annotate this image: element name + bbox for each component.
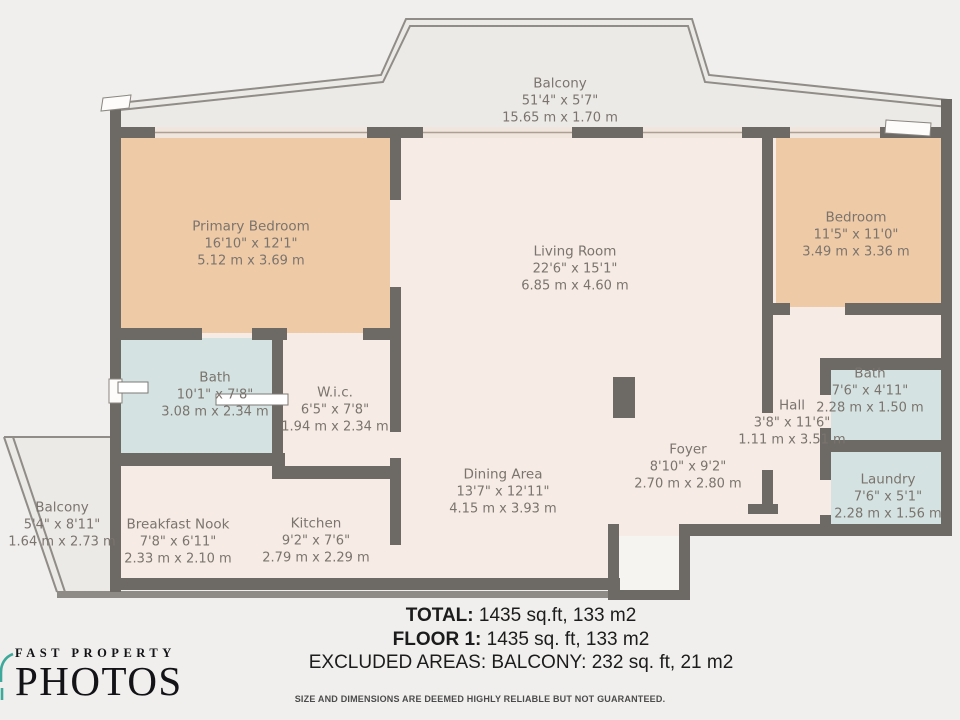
fast-property-photos-logo: FAST PROPERTY PHOTOS [0, 642, 183, 704]
room-dim-metric: 2.79 m x 2.29 m [262, 550, 369, 567]
room-dim-metric: 15.65 m x 1.70 m [502, 110, 618, 127]
room-dim-imperial: 9'2" x 7'6" [262, 533, 369, 550]
room-name: Bedroom [802, 210, 909, 227]
logo-text: FAST PROPERTY PHOTOS [15, 642, 183, 701]
room-name: Breakfast Nook [124, 517, 231, 534]
room-name: Dining Area [449, 467, 556, 484]
room-dim-imperial: 16'10" x 12'1" [192, 236, 310, 253]
room-dim-imperial: 3'8" x 11'6" [738, 415, 845, 432]
room-name: Laundry [834, 472, 941, 489]
floorplan-image: Balcony 51'4" x 5'7" 15.65 m x 1.70 m Pr… [0, 0, 960, 720]
room-dim-imperial: 5'4" x 8'11" [8, 517, 115, 534]
logo-line2: PHOTOS [15, 661, 183, 701]
room-dim-imperial: 7'6" x 5'1" [834, 489, 941, 506]
summary-floor-line: FLOOR 1: 1435 sq. ft, 133 m2 [309, 628, 734, 652]
room-dim-imperial: 10'1" x 7'8" [161, 387, 268, 404]
room-dim-metric: 1.94 m x 2.34 m [281, 419, 388, 436]
area-summary: TOTAL: 1435 sq.ft, 133 m2 FLOOR 1: 1435 … [309, 604, 734, 675]
room-dim-metric: 1.64 m x 2.73 m [8, 534, 115, 551]
room-dim-metric: 2.70 m x 2.80 m [634, 476, 741, 493]
room-label-breakfast-nook: Breakfast Nook 7'8" x 6'11" 2.33 m x 2.1… [124, 517, 231, 568]
room-dim-metric: 2.33 m x 2.10 m [124, 551, 231, 568]
room-dim-imperial: 7'6" x 4'11" [816, 383, 923, 400]
room-dim-metric: 3.49 m x 3.36 m [802, 244, 909, 261]
room-label-dining-area: Dining Area 13'7" x 12'11" 4.15 m x 3.93… [449, 467, 556, 518]
room-label-bedroom: Bedroom 11'5" x 11'0" 3.49 m x 3.36 m [802, 210, 909, 261]
room-label-bath-right: Bath 7'6" x 4'11" 2.28 m x 1.50 m [816, 366, 923, 417]
room-label-primary-bedroom: Primary Bedroom 16'10" x 12'1" 5.12 m x … [192, 219, 310, 270]
summary-floor-value: 1435 sq. ft, 133 m2 [481, 629, 649, 650]
room-label-wic: W.i.c. 6'5" x 7'8" 1.94 m x 2.34 m [281, 385, 388, 436]
room-label-foyer: Foyer 8'10" x 9'2" 2.70 m x 2.80 m [634, 442, 741, 493]
room-name: Foyer [634, 442, 741, 459]
room-name: Bath [816, 366, 923, 383]
room-name: Living Room [521, 244, 628, 261]
room-dim-imperial: 7'8" x 6'11" [124, 534, 231, 551]
room-label-balcony-top: Balcony 51'4" x 5'7" 15.65 m x 1.70 m [502, 76, 618, 127]
room-dim-metric: 5.12 m x 3.69 m [192, 253, 310, 270]
room-label-laundry: Laundry 7'6" x 5'1" 2.28 m x 1.56 m [834, 472, 941, 523]
disclaimer-text: SIZE AND DIMENSIONS ARE DEEMED HIGHLY RE… [295, 694, 666, 704]
room-name: Bath [161, 370, 268, 387]
room-dim-metric: 6.85 m x 4.60 m [521, 278, 628, 295]
logo-house-icon [0, 648, 14, 702]
room-dim-metric: 2.28 m x 1.50 m [816, 400, 923, 417]
room-dim-imperial: 8'10" x 9'2" [634, 459, 741, 476]
room-dim-metric: 2.28 m x 1.56 m [834, 506, 941, 523]
room-name: W.i.c. [281, 385, 388, 402]
summary-excluded-line: EXCLUDED AREAS: BALCONY: 232 sq. ft, 21 … [309, 651, 734, 675]
room-dim-metric: 3.08 m x 2.34 m [161, 404, 268, 421]
room-name: Balcony [502, 76, 618, 93]
room-name: Primary Bedroom [192, 219, 310, 236]
room-dim-metric: 1.11 m x 3.51 m [738, 432, 845, 449]
summary-total-line: TOTAL: 1435 sq.ft, 133 m2 [309, 604, 734, 628]
room-dim-imperial: 11'5" x 11'0" [802, 227, 909, 244]
room-name: Kitchen [262, 516, 369, 533]
summary-total-value: 1435 sq.ft, 133 m2 [474, 605, 637, 626]
room-dim-metric: 4.15 m x 3.93 m [449, 501, 556, 518]
room-dim-imperial: 22'6" x 15'1" [521, 261, 628, 278]
room-label-living-room: Living Room 22'6" x 15'1" 6.85 m x 4.60 … [521, 244, 628, 295]
room-dim-imperial: 51'4" x 5'7" [502, 93, 618, 110]
summary-total-label: TOTAL: [406, 605, 474, 626]
room-dim-imperial: 13'7" x 12'11" [449, 484, 556, 501]
room-dim-imperial: 6'5" x 7'8" [281, 402, 388, 419]
summary-floor-label: FLOOR 1: [393, 629, 482, 650]
room-label-kitchen: Kitchen 9'2" x 7'6" 2.79 m x 2.29 m [262, 516, 369, 567]
room-label-balcony-left: Balcony 5'4" x 8'11" 1.64 m x 2.73 m [8, 500, 115, 551]
room-name: Balcony [8, 500, 115, 517]
room-label-bath-left: Bath 10'1" x 7'8" 3.08 m x 2.34 m [161, 370, 268, 421]
